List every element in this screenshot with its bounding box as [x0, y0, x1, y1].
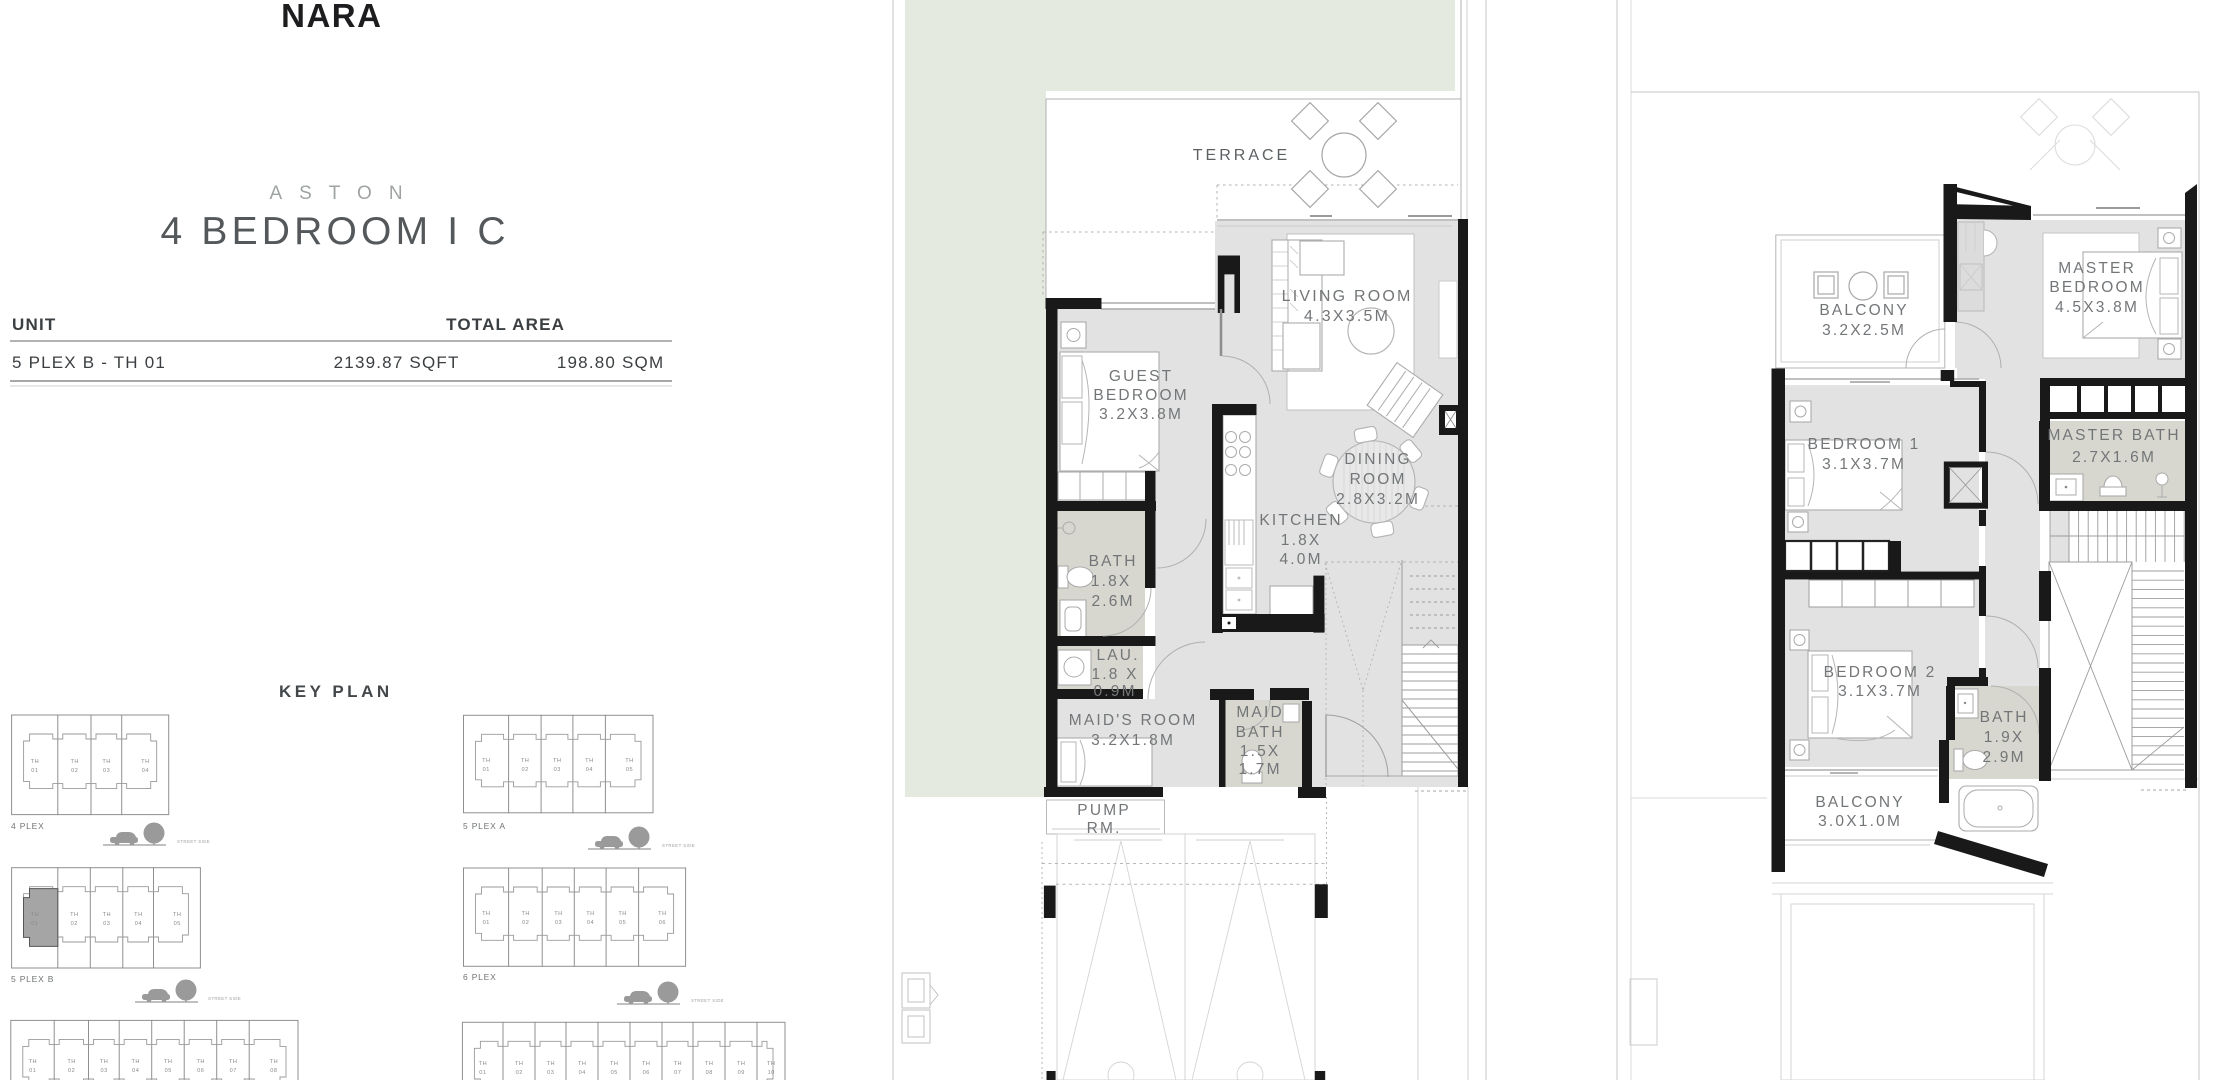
- svg-text:UNIT: UNIT: [12, 315, 56, 334]
- svg-text:4.5X3.8M: 4.5X3.8M: [2055, 299, 2139, 316]
- svg-text:01: 01: [31, 768, 38, 774]
- svg-text:05: 05: [174, 921, 181, 927]
- svg-text:TH: TH: [642, 1061, 650, 1067]
- svg-text:02: 02: [516, 1070, 523, 1076]
- svg-text:TERRACE: TERRACE: [1193, 147, 1290, 164]
- svg-text:1.8X: 1.8X: [1281, 532, 1322, 549]
- svg-text:TH: TH: [521, 911, 529, 917]
- svg-text:TH: TH: [103, 912, 111, 918]
- svg-text:3.2X3.8M: 3.2X3.8M: [1099, 406, 1183, 423]
- svg-text:05: 05: [626, 767, 633, 773]
- svg-text:1.5X: 1.5X: [1240, 743, 1281, 760]
- svg-text:198.80 SQM: 198.80 SQM: [557, 353, 664, 372]
- svg-text:TH: TH: [31, 759, 39, 765]
- svg-text:TH: TH: [102, 759, 110, 765]
- svg-text:TH: TH: [767, 1061, 775, 1067]
- svg-text:TH: TH: [578, 1061, 586, 1067]
- svg-text:6 PLEX: 6 PLEX: [463, 972, 497, 982]
- svg-text:DINING: DINING: [1344, 451, 1411, 468]
- svg-text:TH: TH: [229, 1059, 237, 1065]
- svg-text:MAID'S ROOM: MAID'S ROOM: [1069, 712, 1198, 729]
- svg-text:5 PLEX B: 5 PLEX B: [11, 974, 54, 984]
- svg-text:TH: TH: [141, 759, 149, 765]
- svg-text:TH: TH: [482, 758, 490, 764]
- svg-text:TH: TH: [737, 1061, 745, 1067]
- svg-text:1.8 X: 1.8 X: [1091, 666, 1138, 683]
- svg-text:TH: TH: [625, 758, 633, 764]
- svg-text:07: 07: [674, 1070, 681, 1076]
- svg-text:04: 04: [142, 768, 149, 774]
- svg-text:3.0X1.0M: 3.0X1.0M: [1818, 813, 1902, 830]
- svg-text:KEY PLAN: KEY PLAN: [279, 682, 393, 701]
- svg-text:MAID: MAID: [1236, 704, 1284, 721]
- svg-text:03: 03: [555, 920, 562, 926]
- svg-text:BEDROOM: BEDROOM: [2049, 279, 2145, 296]
- svg-text:MASTER: MASTER: [2058, 260, 2136, 277]
- svg-text:09: 09: [738, 1070, 745, 1076]
- svg-text:05: 05: [611, 1070, 618, 1076]
- svg-text:STREET SIDE: STREET SIDE: [208, 996, 241, 1001]
- svg-text:02: 02: [522, 920, 529, 926]
- svg-text:TH: TH: [585, 758, 593, 764]
- svg-text:01: 01: [483, 920, 490, 926]
- svg-text:4 PLEX: 4 PLEX: [11, 821, 45, 831]
- svg-text:TH: TH: [31, 912, 39, 918]
- svg-text:TH: TH: [196, 1059, 204, 1065]
- svg-text:2139.87 SQFT: 2139.87 SQFT: [334, 353, 460, 372]
- svg-text:TH: TH: [515, 1061, 523, 1067]
- svg-text:06: 06: [197, 1068, 204, 1074]
- svg-text:2.9M: 2.9M: [1982, 749, 2025, 766]
- svg-text:BEDROOM: BEDROOM: [1093, 387, 1189, 404]
- svg-text:05: 05: [619, 920, 626, 926]
- svg-text:06: 06: [659, 920, 666, 926]
- svg-text:RM.: RM.: [1087, 820, 1122, 837]
- svg-text:5 PLEX A: 5 PLEX A: [463, 821, 506, 831]
- svg-text:2.7X1.6M: 2.7X1.6M: [2072, 449, 2156, 466]
- svg-text:BEDROOM 2: BEDROOM 2: [1824, 664, 1937, 681]
- svg-text:TH: TH: [270, 1059, 278, 1065]
- svg-text:1.9X: 1.9X: [1984, 729, 2025, 746]
- svg-text:03: 03: [554, 767, 561, 773]
- svg-text:BATH: BATH: [1089, 553, 1138, 570]
- svg-text:01: 01: [483, 767, 490, 773]
- svg-text:MASTER BATH: MASTER BATH: [2047, 427, 2180, 444]
- svg-text:TH: TH: [554, 911, 562, 917]
- svg-text:1.7M: 1.7M: [1238, 761, 1281, 778]
- svg-text:04: 04: [586, 767, 593, 773]
- svg-text:03: 03: [103, 768, 110, 774]
- svg-text:3.2X2.5M: 3.2X2.5M: [1822, 322, 1906, 339]
- svg-text:02: 02: [71, 768, 78, 774]
- svg-text:TH: TH: [67, 1059, 75, 1065]
- svg-text:TH: TH: [610, 1061, 618, 1067]
- svg-text:04: 04: [587, 920, 594, 926]
- svg-text:08: 08: [270, 1068, 277, 1074]
- svg-text:TH: TH: [70, 912, 78, 918]
- svg-text:TH: TH: [586, 911, 594, 917]
- svg-text:02: 02: [68, 1068, 75, 1074]
- svg-text:4.0M: 4.0M: [1279, 551, 1322, 568]
- svg-text:TH: TH: [29, 1059, 37, 1065]
- svg-text:BALCONY: BALCONY: [1815, 794, 1904, 811]
- svg-text:LIVING ROOM: LIVING ROOM: [1282, 288, 1413, 305]
- svg-text:STREET SIDE: STREET SIDE: [177, 839, 210, 844]
- svg-text:TH: TH: [547, 1061, 555, 1067]
- svg-text:LAU.: LAU.: [1096, 647, 1139, 664]
- svg-text:NARA: NARA: [281, 0, 382, 34]
- svg-text:03: 03: [100, 1068, 107, 1074]
- svg-text:05: 05: [165, 1068, 172, 1074]
- svg-text:2.6M: 2.6M: [1091, 593, 1134, 610]
- svg-text:TH: TH: [553, 758, 561, 764]
- svg-text:BATH: BATH: [1980, 709, 2029, 726]
- svg-text:03: 03: [103, 921, 110, 927]
- svg-text:4.3X3.5M: 4.3X3.5M: [1304, 308, 1390, 325]
- svg-text:1.8X: 1.8X: [1091, 573, 1132, 590]
- svg-text:06: 06: [643, 1070, 650, 1076]
- svg-text:01: 01: [31, 921, 38, 927]
- svg-text:04: 04: [579, 1070, 586, 1076]
- svg-text:TH: TH: [705, 1061, 713, 1067]
- svg-text:04: 04: [135, 921, 142, 927]
- svg-text:BEDROOM 1: BEDROOM 1: [1808, 436, 1921, 453]
- svg-text:TH: TH: [70, 759, 78, 765]
- svg-text:10: 10: [768, 1070, 775, 1076]
- svg-text:0.9M: 0.9M: [1093, 683, 1136, 700]
- svg-text:02: 02: [71, 921, 78, 927]
- svg-text:BALCONY: BALCONY: [1819, 302, 1908, 319]
- svg-text:TH: TH: [131, 1059, 139, 1065]
- svg-text:07: 07: [230, 1068, 237, 1074]
- svg-text:TH: TH: [173, 912, 181, 918]
- svg-text:GUEST: GUEST: [1109, 368, 1173, 385]
- svg-text:2.8X3.2M: 2.8X3.2M: [1336, 491, 1420, 508]
- svg-text:TH: TH: [482, 911, 490, 917]
- svg-text:TH: TH: [521, 758, 529, 764]
- svg-text:3.1X3.7M: 3.1X3.7M: [1838, 683, 1922, 700]
- svg-text:STREET SIDE: STREET SIDE: [662, 843, 695, 848]
- svg-text:01: 01: [29, 1068, 36, 1074]
- svg-text:4 BEDROOM I C: 4 BEDROOM I C: [160, 210, 509, 253]
- svg-text:3.2X1.8M: 3.2X1.8M: [1091, 732, 1175, 749]
- svg-text:TOTAL AREA: TOTAL AREA: [446, 315, 565, 334]
- svg-text:5 PLEX B - TH 01: 5 PLEX B - TH 01: [12, 353, 166, 372]
- svg-text:01: 01: [479, 1070, 486, 1076]
- svg-text:08: 08: [706, 1070, 713, 1076]
- svg-text:TH: TH: [674, 1061, 682, 1067]
- svg-text:STREET SIDE: STREET SIDE: [691, 998, 724, 1003]
- svg-text:03: 03: [547, 1070, 554, 1076]
- svg-text:3.1X3.7M: 3.1X3.7M: [1822, 456, 1906, 473]
- svg-text:TH: TH: [164, 1059, 172, 1065]
- svg-text:TH: TH: [479, 1061, 487, 1067]
- svg-text:TH: TH: [658, 911, 666, 917]
- svg-text:ROOM: ROOM: [1350, 471, 1407, 488]
- svg-text:02: 02: [521, 767, 528, 773]
- svg-text:BATH: BATH: [1236, 724, 1285, 741]
- svg-text:TH: TH: [618, 911, 626, 917]
- svg-text:TH: TH: [134, 912, 142, 918]
- svg-text:TH: TH: [100, 1059, 108, 1065]
- svg-text:04: 04: [132, 1068, 139, 1074]
- svg-text:PUMP: PUMP: [1077, 802, 1131, 819]
- svg-text:KITCHEN: KITCHEN: [1259, 512, 1342, 529]
- svg-text:ASTON: ASTON: [269, 183, 419, 204]
